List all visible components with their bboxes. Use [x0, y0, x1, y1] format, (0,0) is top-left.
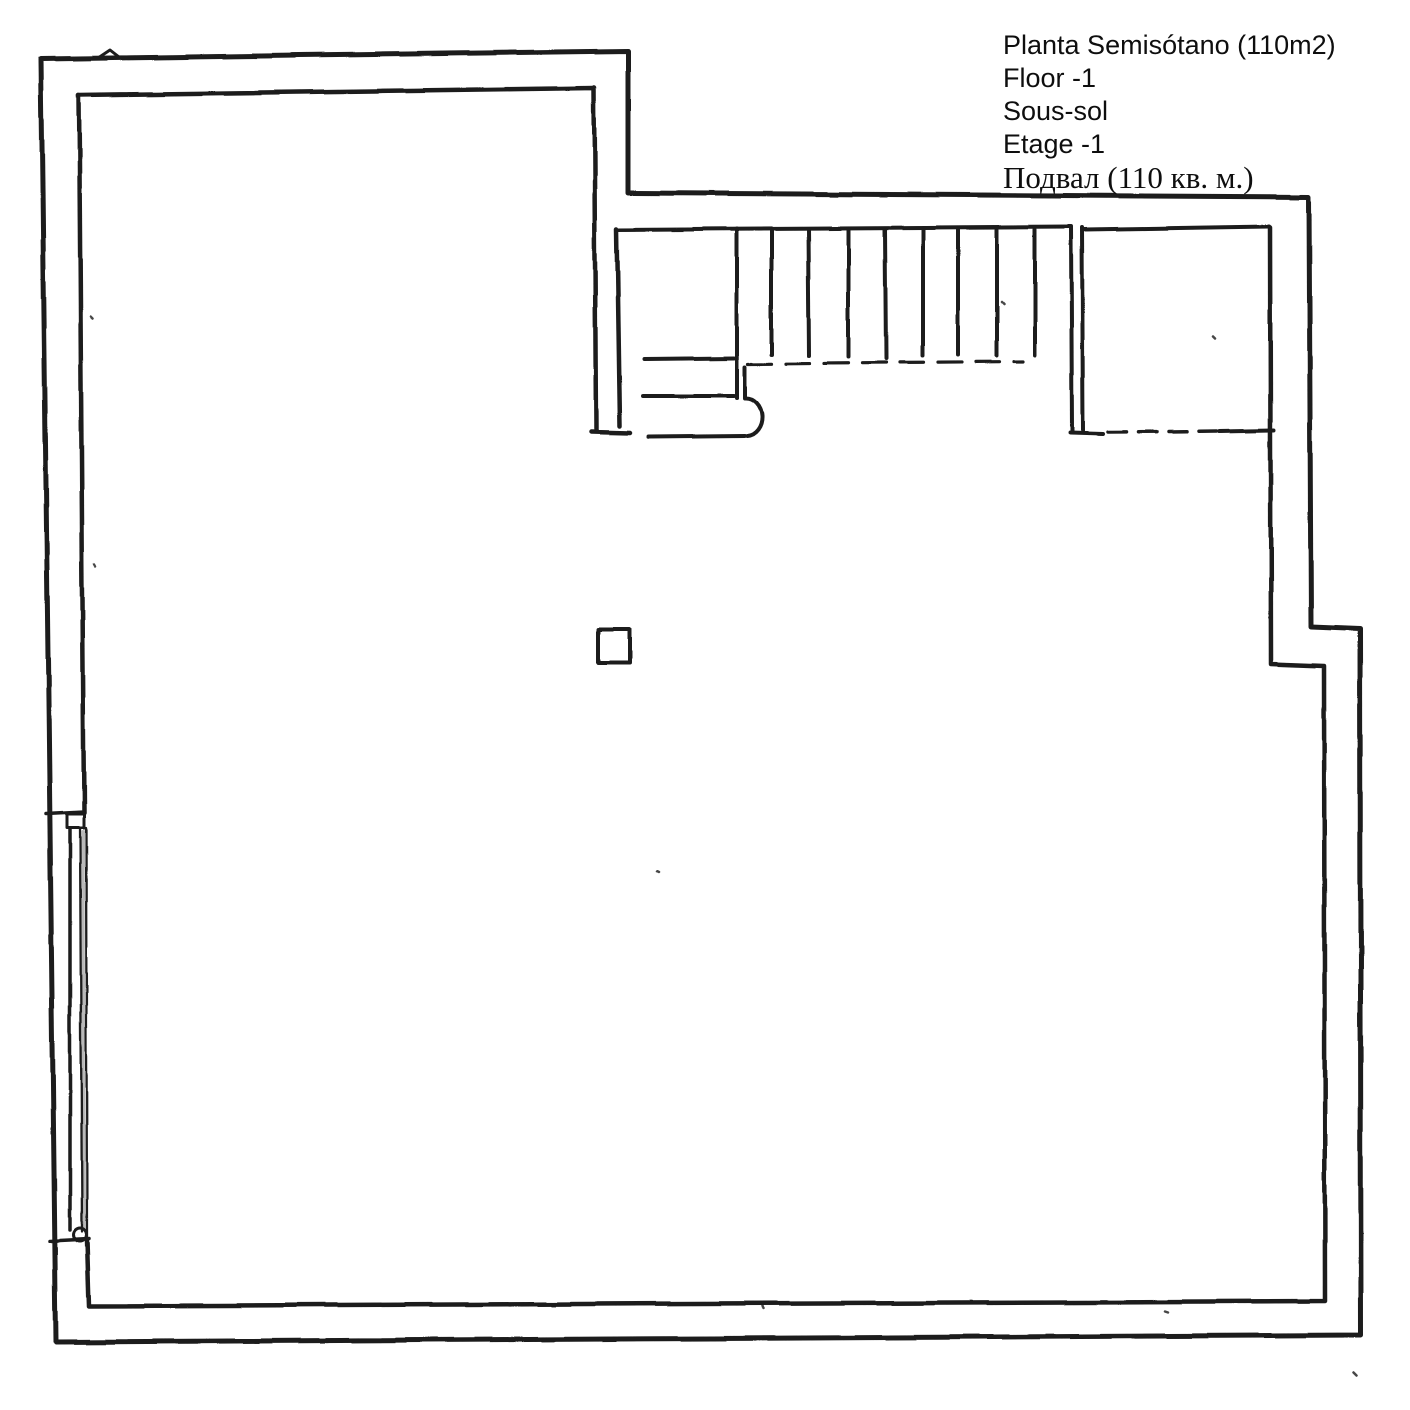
scan-specks [91, 302, 1357, 1376]
title-block: Planta Semisótano (110m2) Floor -1 Sous-… [1003, 29, 1403, 195]
stair-right-wall [1070, 228, 1103, 434]
stair-treads [772, 229, 1035, 359]
stair-walk-line [748, 362, 1023, 364]
plan-title-english: Floor -1 [1003, 62, 1403, 95]
floor-plan-sheet: Planta Semisótano (110m2) Floor -1 Sous-… [0, 0, 1410, 1410]
window-glazing-fill [83, 832, 84, 1228]
plan-title-french-etage: Etage -1 [1003, 128, 1403, 161]
window-head-box [67, 814, 84, 828]
storage-room-top-wall [1084, 227, 1269, 230]
plan-title-french-soussol: Sous-sol [1003, 95, 1403, 128]
stair-left-wall [617, 229, 620, 426]
floor-plan-drawing [0, 0, 1410, 1410]
stair-top-wall [618, 227, 1071, 230]
window-sill-bottom [50, 1239, 89, 1241]
plan-title-russian: Подвал (110 кв. м.) [1003, 161, 1403, 195]
stair-rail [643, 229, 762, 437]
plan-title-spanish: Planta Semisótano (110m2) [1003, 29, 1403, 62]
inner-wall-main [79, 95, 1325, 1306]
inner-wall-top-left-bay [79, 88, 630, 433]
column [599, 629, 630, 663]
storage-room-bottom-solid [1219, 430, 1274, 431]
storage-room-bottom-dashed [1108, 431, 1220, 432]
outer-wall [41, 51, 1361, 1342]
